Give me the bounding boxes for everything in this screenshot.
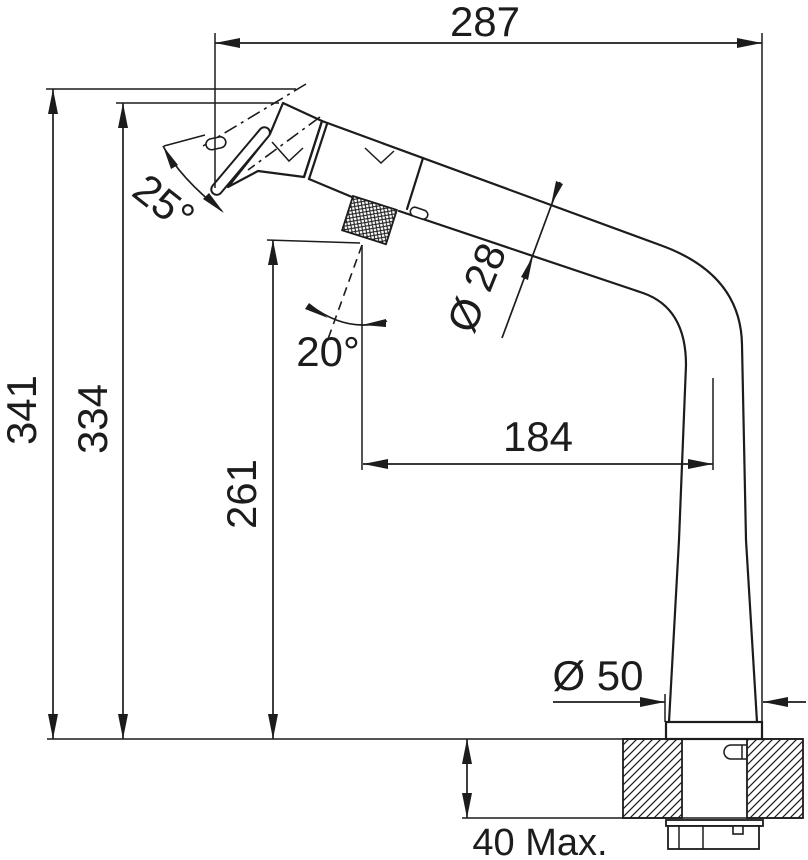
dim-label-20deg: 20° [296, 328, 360, 375]
counter-hatch-right [747, 739, 803, 818]
arrowhead-right [688, 459, 713, 469]
mounting-nut [666, 820, 763, 849]
base-flange [666, 722, 762, 739]
arrowhead-lower [521, 256, 533, 280]
arrowhead-top [48, 89, 58, 114]
arrowhead-right [763, 697, 788, 707]
tilted-face-plate-cap [205, 136, 227, 151]
faucet-technical-drawing: 287 341 334 261 [0, 0, 808, 860]
angle-reference-tail [164, 135, 205, 146]
arrowhead-top [118, 103, 128, 128]
arrowhead-bottom [268, 714, 278, 739]
dim-label-334: 334 [69, 384, 116, 454]
arrowhead-left [305, 303, 328, 318]
dim-label-25deg: 25° [124, 165, 203, 241]
arrowhead-upper [551, 181, 563, 205]
dim-label-261: 261 [218, 459, 265, 529]
arrowhead-right [737, 38, 762, 48]
arrowhead-lower [203, 193, 224, 213]
dim-25-head-angle: 25° [124, 135, 224, 241]
arrowhead-left [640, 697, 665, 707]
dim-20-swivel-angle: 20° [296, 245, 387, 375]
countertop-section [47, 739, 803, 849]
mounting-nut-body [668, 826, 759, 849]
spray-hose-seam [407, 158, 423, 209]
dim-label-184: 184 [503, 413, 573, 460]
arrowhead-bottom [48, 714, 58, 739]
arrowhead-bottom [118, 714, 128, 739]
dim-40-counter-thickness: 40 Max. [462, 739, 608, 860]
arrowhead-left [363, 459, 388, 469]
mounting-washer [666, 820, 763, 826]
spout-inner-edge-front [309, 179, 352, 197]
arrowhead-left [215, 38, 240, 48]
hidden-detail-dashes-2 [365, 148, 394, 163]
extension-line [267, 240, 360, 243]
nut-tab [733, 826, 743, 834]
dim-label-40max: 40 Max. [472, 822, 607, 860]
dim-label-dia28: Ø 28 [438, 237, 516, 339]
faucet-body [209, 103, 762, 739]
dim-label-287: 287 [450, 0, 520, 45]
dim-50-base-diameter: Ø 50 [552, 652, 806, 722]
dim-label-341: 341 [0, 375, 45, 445]
shank-hose-connector [724, 745, 747, 759]
spout-button-detail [409, 206, 429, 220]
knurled-handle-knob [342, 196, 397, 244]
counter-hatch-left [623, 739, 682, 818]
dimension-drawing-canvas: 287 341 334 261 [0, 0, 808, 860]
arrowhead-top [462, 739, 472, 764]
arrowhead-upper [163, 146, 178, 169]
dim-label-dia50: Ø 50 [552, 652, 643, 699]
arrowhead-bottom [462, 793, 472, 818]
dim-184-spout-reach: 184 [362, 245, 713, 470]
arrowhead-top [268, 240, 278, 265]
spout-inner-edge-rear [399, 211, 686, 722]
dim-261-handle-height: 261 [218, 240, 360, 739]
